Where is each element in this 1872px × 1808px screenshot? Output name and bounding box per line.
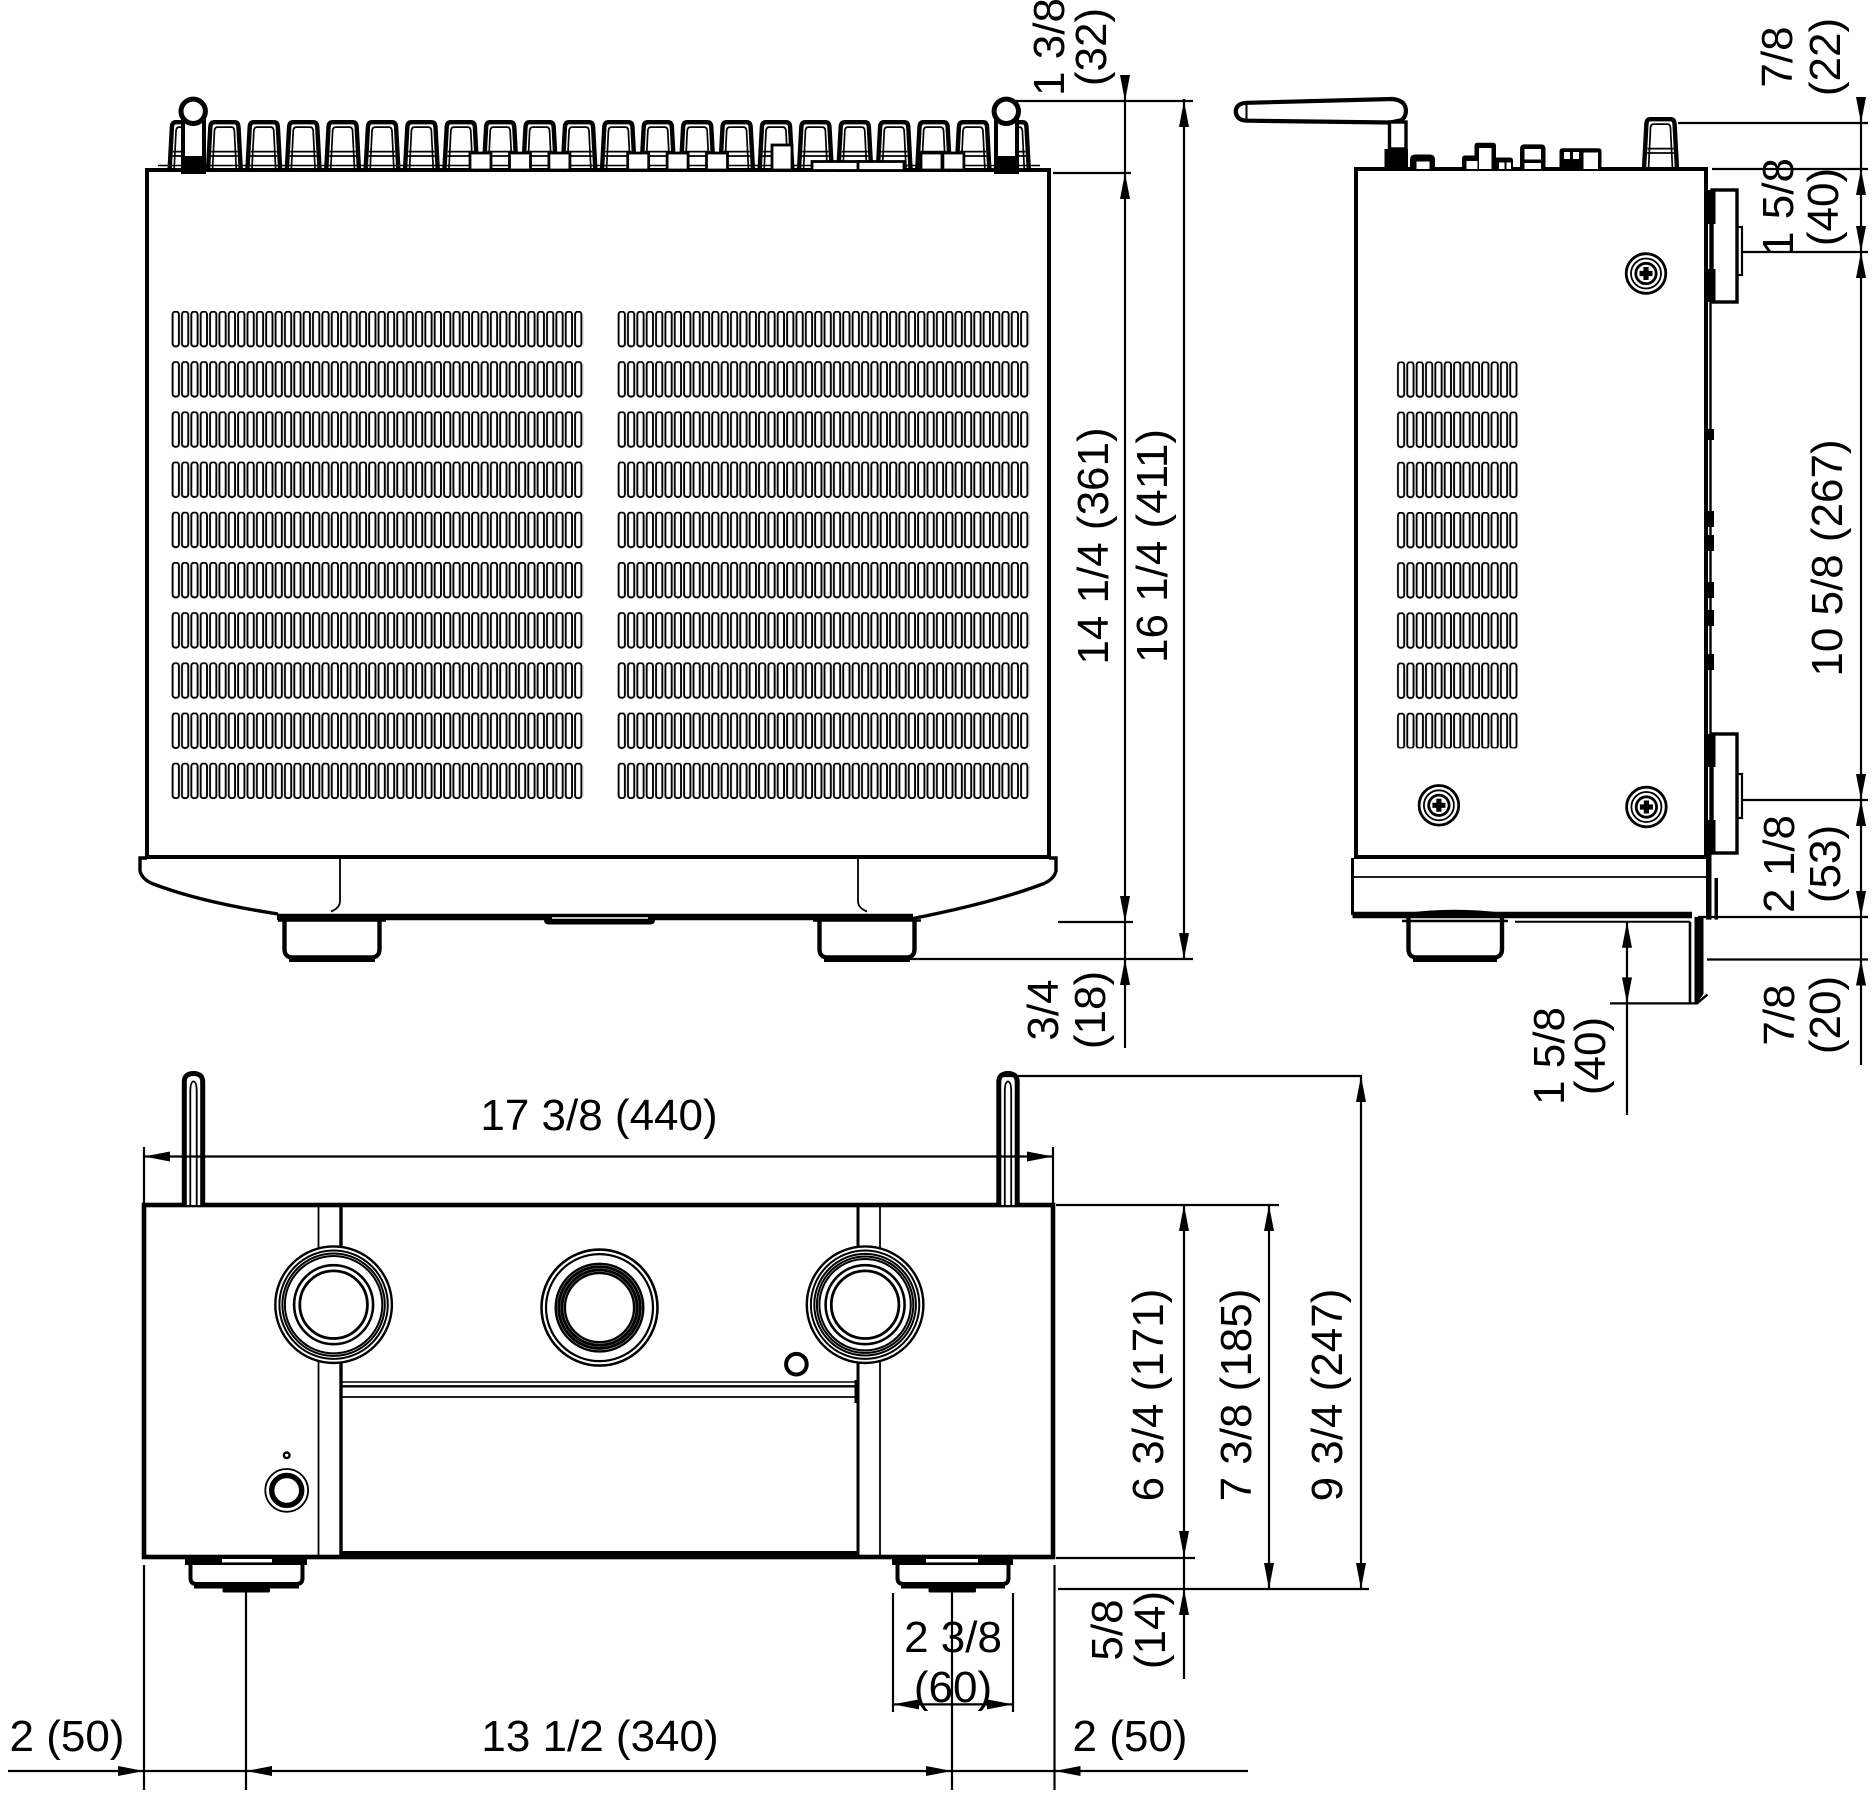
svg-text:9 3/4 (247): 9 3/4 (247) [1303, 1289, 1352, 1502]
svg-text:2 (50): 2 (50) [10, 1712, 125, 1761]
svg-text:2 (50): 2 (50) [1073, 1712, 1188, 1761]
svg-text:(40): (40) [1566, 1017, 1615, 1095]
svg-text:17 3/8 (440): 17 3/8 (440) [480, 1091, 717, 1140]
svg-text:6 3/4 (171): 6 3/4 (171) [1124, 1289, 1173, 1502]
svg-text:(32): (32) [1067, 8, 1116, 86]
svg-text:7/8: 7/8 [1755, 984, 1804, 1045]
svg-text:3/4: 3/4 [1019, 979, 1068, 1040]
svg-text:(18): (18) [1066, 971, 1115, 1049]
svg-text:7 3/8 (185): 7 3/8 (185) [1212, 1289, 1261, 1502]
svg-text:(14): (14) [1126, 1591, 1175, 1669]
svg-text:14 1/4 (361): 14 1/4 (361) [1069, 427, 1118, 664]
svg-text:(22): (22) [1801, 18, 1850, 96]
svg-text:2 1/8: 2 1/8 [1755, 815, 1804, 913]
svg-text:(20): (20) [1801, 976, 1850, 1054]
svg-text:5/8: 5/8 [1083, 1599, 1132, 1660]
svg-text:16 1/4 (411): 16 1/4 (411) [1128, 429, 1177, 663]
svg-text:1 5/8: 1 5/8 [1754, 158, 1803, 256]
svg-text:13 1/2 (340): 13 1/2 (340) [481, 1712, 718, 1761]
svg-text:7/8: 7/8 [1753, 26, 1802, 87]
svg-text:10 5/8 (267): 10 5/8 (267) [1803, 439, 1852, 676]
svg-text:(53): (53) [1801, 825, 1850, 903]
svg-text:(40): (40) [1799, 168, 1848, 246]
